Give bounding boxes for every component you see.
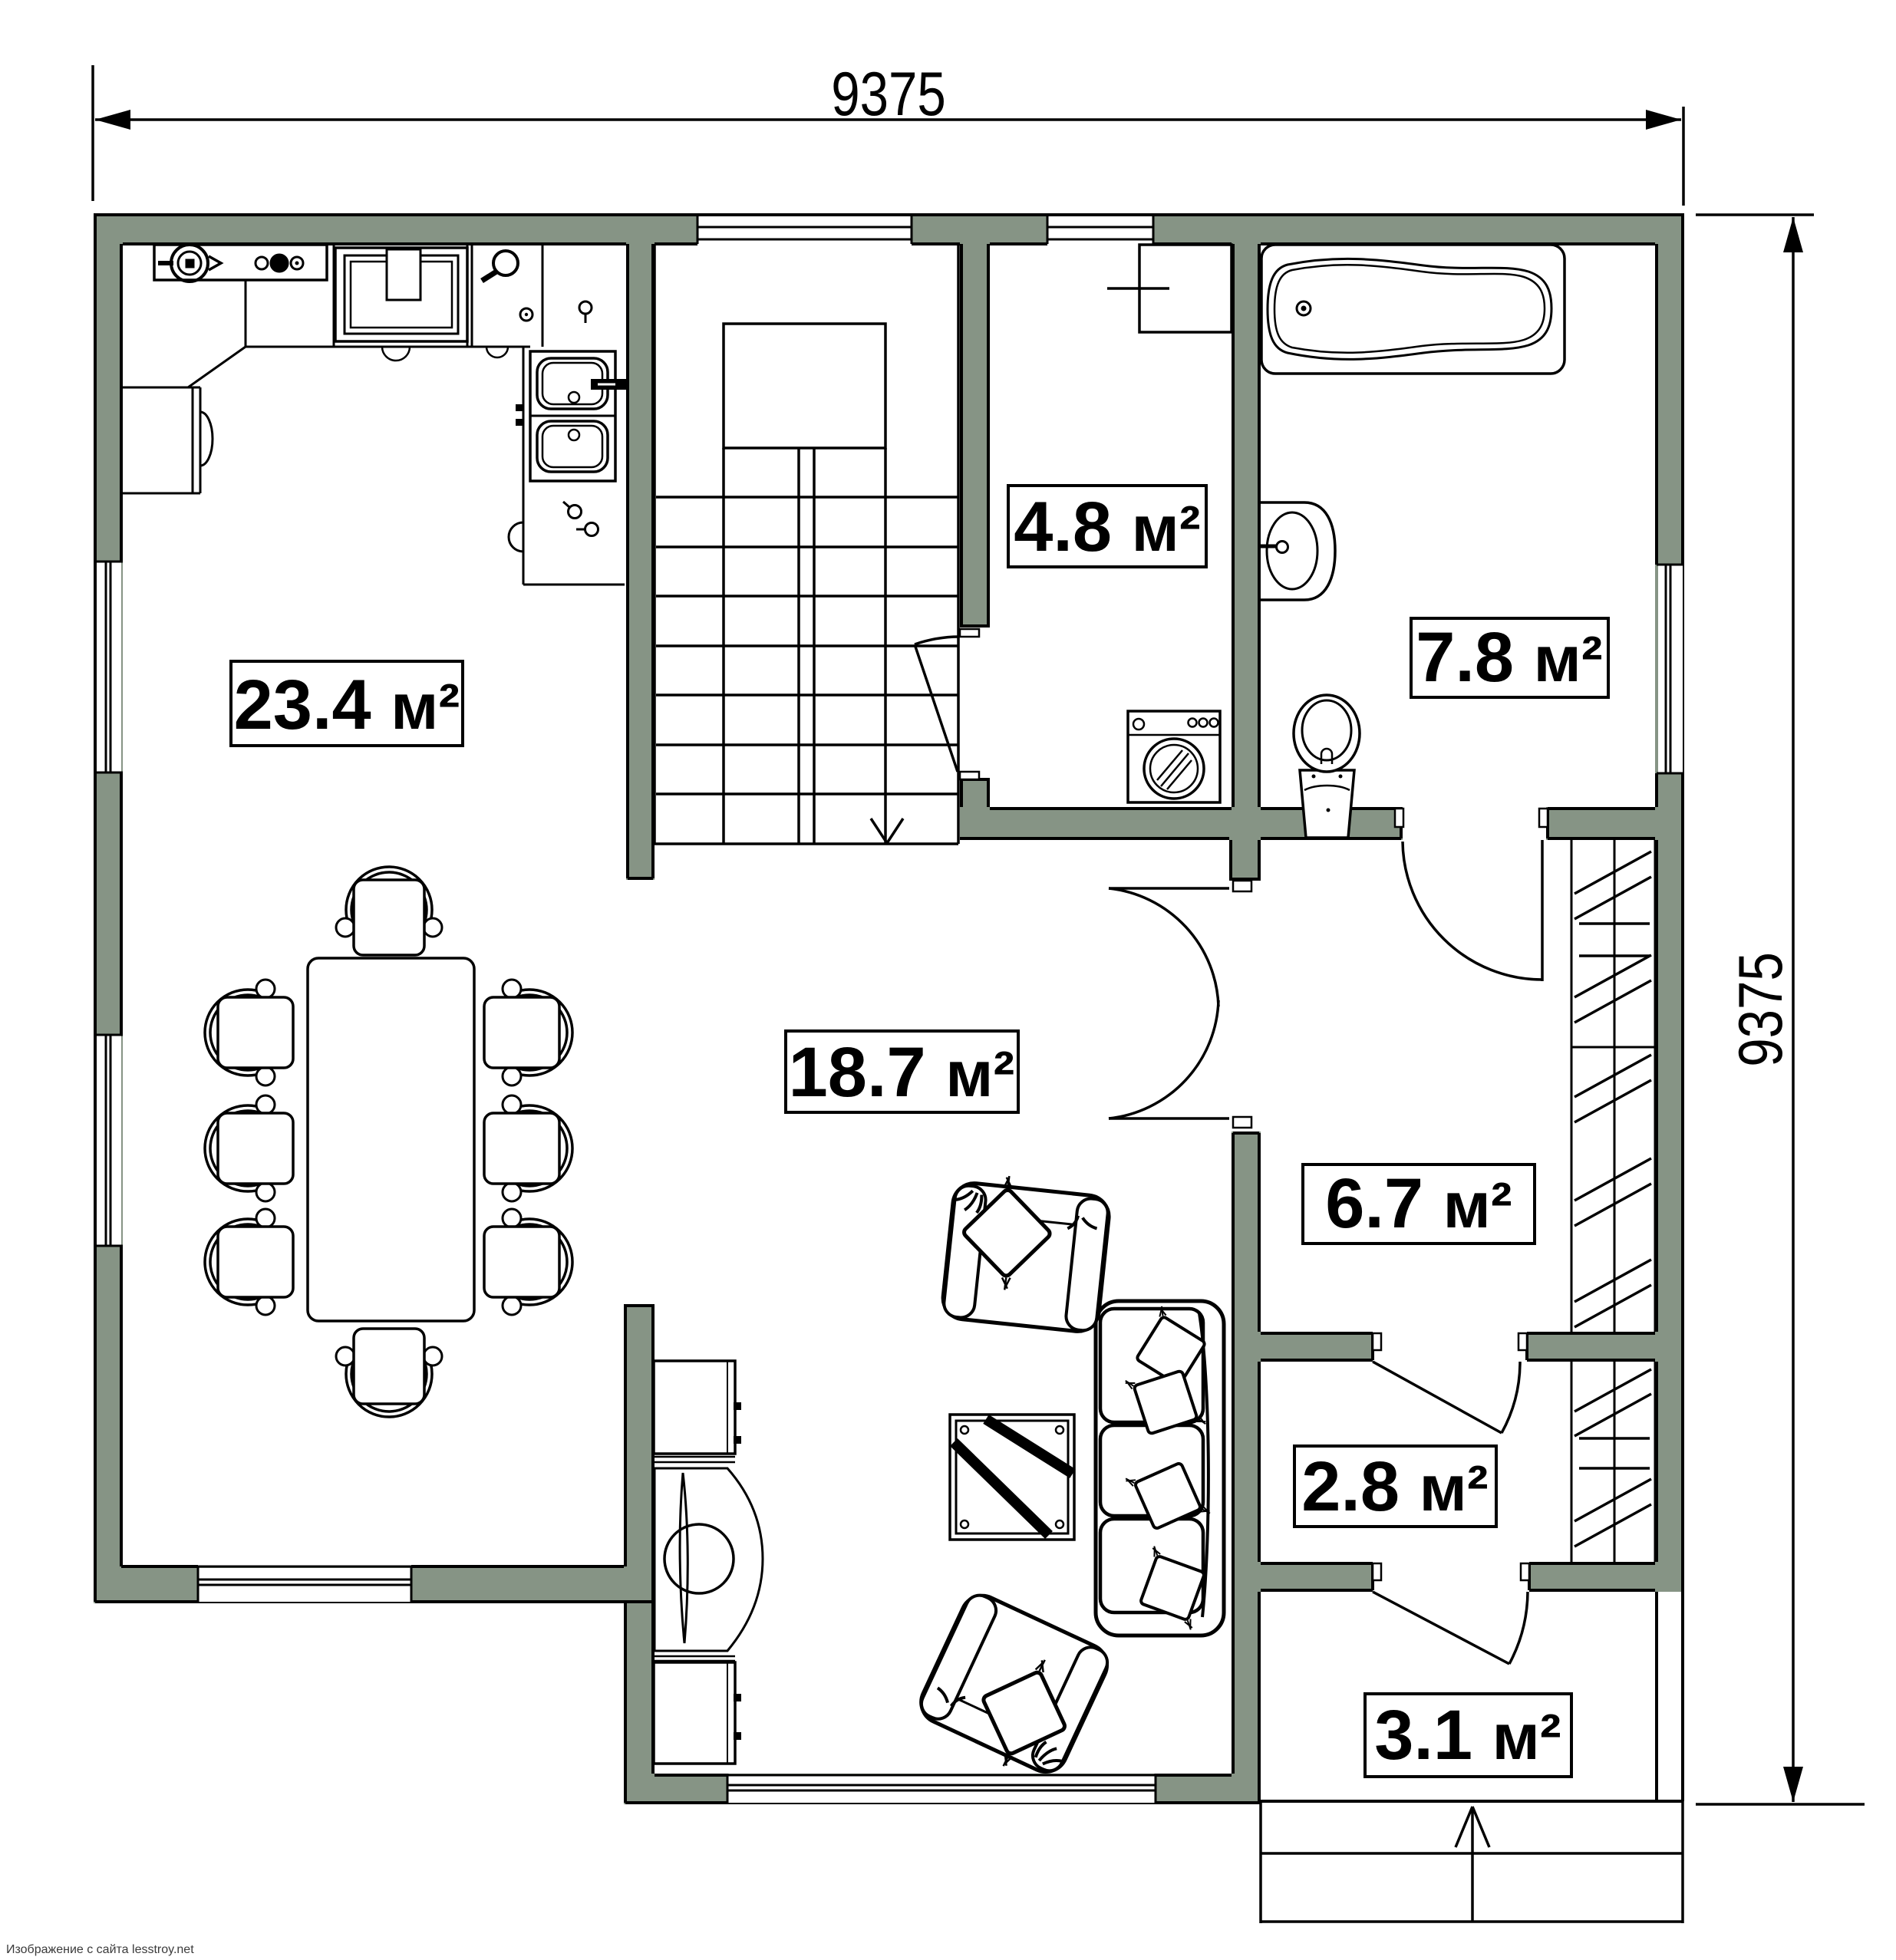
svg-text:23.4 м²: 23.4 м² — [234, 666, 460, 744]
svg-text:9375: 9375 — [1726, 952, 1795, 1067]
svg-text:Изображение с сайта lesstroy.n: Изображение с сайта lesstroy.net — [6, 1943, 194, 1956]
svg-text:18.7 м²: 18.7 м² — [789, 1033, 1015, 1112]
svg-text:4.8 м²: 4.8 м² — [1014, 488, 1201, 566]
svg-text:9375: 9375 — [831, 59, 946, 128]
svg-text:7.8 м²: 7.8 м² — [1416, 618, 1603, 697]
svg-text:2.8 м²: 2.8 м² — [1301, 1448, 1489, 1526]
svg-text:6.7 м²: 6.7 м² — [1325, 1164, 1512, 1243]
svg-text:3.1 м²: 3.1 м² — [1374, 1696, 1561, 1774]
